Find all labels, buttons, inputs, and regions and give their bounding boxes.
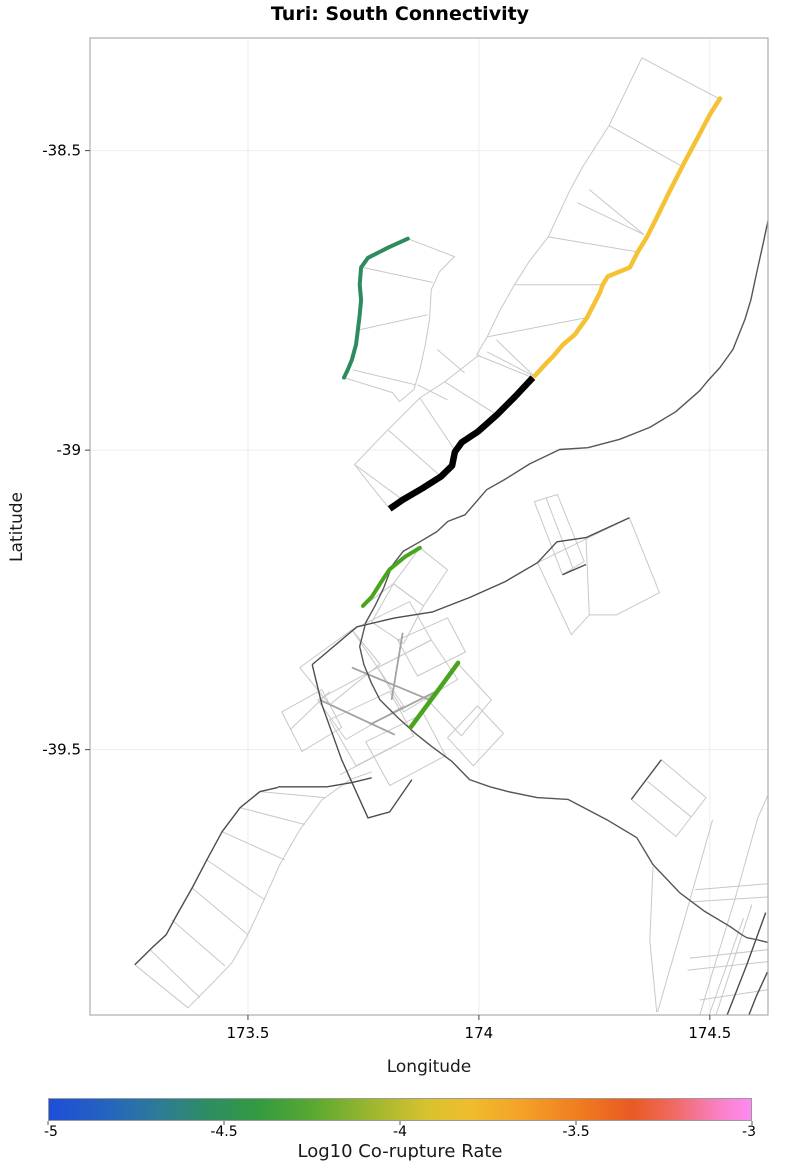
fault-section-outline: [222, 832, 285, 860]
fault-trace-dark: [278, 778, 372, 787]
fault-section-outline: [546, 499, 573, 569]
map-plot-canvas: 173.5174174.5-38.5-39-39.5: [0, 0, 800, 1172]
fault-section-segment: [392, 633, 403, 700]
fault-section-outline: [135, 772, 372, 1008]
co-rupture-trace-gold-trace-north-east: [535, 99, 720, 376]
co-rupture-trace-south-source-black: [390, 378, 533, 509]
fault-section-outline: [658, 820, 713, 1012]
fault-section-outline: [548, 237, 637, 252]
fault-section-outline: [418, 385, 448, 400]
y-axis-label: Latitude: [7, 492, 27, 562]
fault-section-outline: [260, 792, 325, 798]
colorbar-tick-label: -4: [393, 1124, 407, 1140]
x-axis-label: Longitude: [90, 1057, 768, 1077]
fault-section-outline: [586, 538, 589, 615]
fault-section-outline: [609, 126, 681, 166]
y-tick-label: -39.5: [42, 741, 81, 759]
fault-section-outline: [534, 495, 584, 575]
fault-trace-dark: [312, 518, 629, 665]
x-tick-label: 173.5: [226, 1024, 269, 1042]
fault-section-outline: [240, 808, 305, 825]
fault-trace-dark: [631, 760, 661, 800]
fault-section-outline: [695, 884, 768, 890]
figure: Turi: South Connectivity 173.5174174.5-3…: [0, 0, 800, 1172]
colorbar-tick-label: -3: [742, 1124, 756, 1140]
colorbar-gradient: [48, 1098, 752, 1121]
colorbar-label: Log10 Co-rupture Rate: [48, 1141, 752, 1162]
fault-section-outline: [445, 382, 497, 415]
fault-section-outline: [487, 318, 586, 337]
fault-section-outline: [448, 706, 504, 766]
y-tick-label: -38.5: [42, 142, 81, 160]
fault-section-outline: [352, 602, 431, 668]
fault-trace-dark: [135, 787, 278, 964]
colorbar-tick-label: -5: [44, 1124, 58, 1140]
y-tick-label: -39: [57, 441, 82, 459]
fault-section-outline: [388, 430, 441, 477]
fault-map-layers: [135, 58, 769, 1018]
fault-section-outline: [192, 888, 248, 935]
fault-section-outline: [700, 818, 758, 1016]
fault-section-outline: [690, 950, 768, 958]
fault-section-outline: [693, 897, 768, 902]
fault-section-outline: [207, 860, 265, 900]
axis-ticks: 173.5174174.5-38.5-39-39.5: [42, 142, 731, 1042]
fault-section-outline: [477, 58, 642, 355]
fault-section-outline: [420, 398, 455, 450]
fault-section-outline: [372, 584, 424, 644]
colorbar-tick-label: -3.5: [562, 1124, 589, 1140]
fault-section-outline: [393, 548, 447, 606]
fault-trace-dark: [748, 972, 768, 1018]
fault-section-outline: [577, 190, 644, 235]
fault-trace-dark: [563, 565, 587, 575]
fault-trace-dark: [312, 665, 412, 818]
co-rupture-trace-teal-trace-north-west: [344, 239, 408, 378]
gridlines: [90, 38, 768, 1015]
fault-section-outline: [360, 315, 428, 330]
fault-section-outline: [648, 781, 691, 816]
plot-frame: [90, 38, 768, 1015]
colorbar-tick-label: -4.5: [210, 1124, 237, 1140]
fault-section-outline: [353, 370, 416, 385]
fault-section-outline: [538, 518, 660, 635]
x-tick-label: 174.5: [688, 1024, 731, 1042]
fault-section-outline: [172, 920, 225, 966]
fault-section-outline: [650, 867, 657, 1012]
fault-section-segment: [352, 668, 430, 700]
fault-section-outline: [487, 340, 534, 377]
fault-section-outline: [642, 58, 721, 100]
coastline-path: [360, 217, 769, 943]
fault-section-outline: [758, 796, 768, 818]
fault-section-outline: [363, 267, 433, 282]
fault-section-outline: [150, 950, 200, 998]
x-tick-label: 174: [465, 1024, 494, 1042]
